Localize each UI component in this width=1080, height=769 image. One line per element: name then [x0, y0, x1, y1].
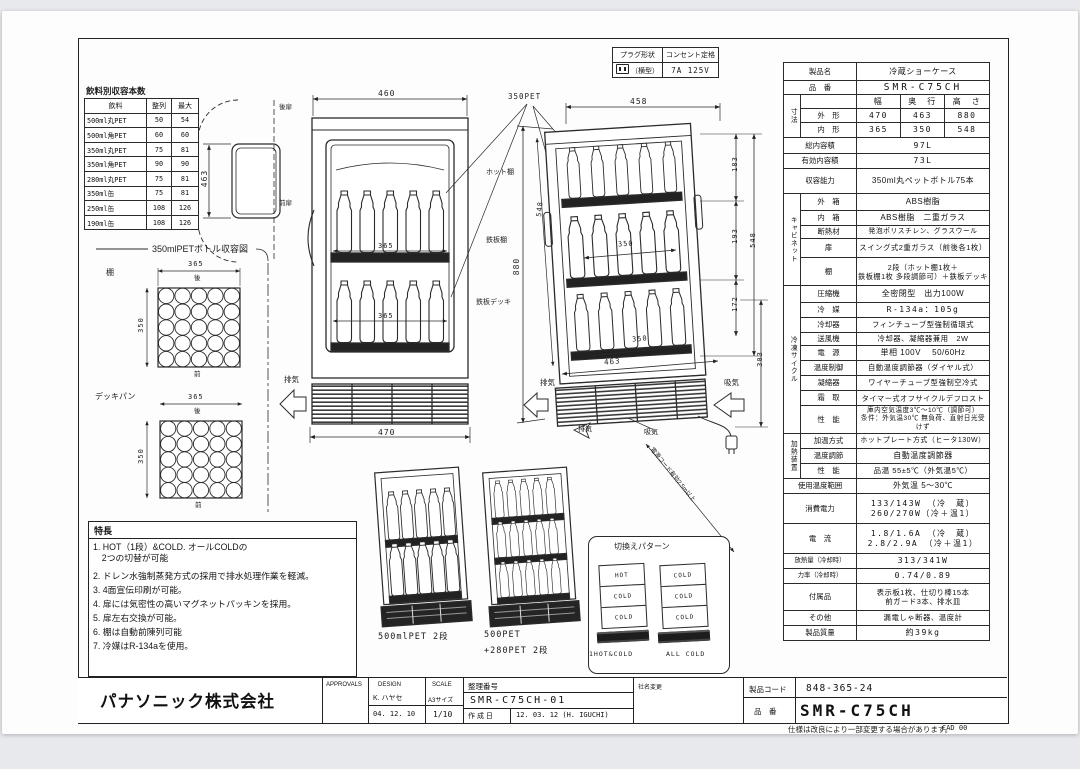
spec-group-label: キャビネット — [784, 194, 801, 286]
spec-row-value: 73L — [857, 154, 990, 169]
capacity-header-cell: 飲料 — [85, 99, 147, 114]
config-unit-1-label: 500mlPET 2段 — [378, 630, 449, 642]
revision-note: 社名変更 — [638, 682, 662, 691]
product-code: 848-365-24 — [806, 683, 873, 694]
shelf-grid-width-dim: 365 — [188, 260, 204, 268]
feature-item: 7. 冷媒はR-134aを使用。 — [93, 641, 352, 652]
front-inner-width-dim-2: 365 — [378, 312, 394, 320]
spec-row-value: 97L — [857, 138, 990, 154]
capacity-row: 250ml缶108126 — [85, 201, 199, 216]
spec-row-value: 133/143W （冷 蔵） 260/270W（冷＋温1） — [857, 494, 990, 524]
spec-row-value: R-134a：105g — [857, 303, 990, 318]
spec-row: その他漏電しゃ断器、温度計 — [784, 611, 990, 626]
spec-row-label: 性 能 — [801, 464, 857, 479]
shelf-grid-front-label: 前 — [194, 368, 201, 378]
deck-depth-dim: 350 — [632, 334, 648, 343]
spec-row-label: 有効内容積 — [784, 154, 857, 169]
bottle-layout-title: 350mlPETボトル収容図 — [152, 242, 248, 255]
spec-row-label: 外 形 — [801, 109, 857, 123]
spec-row-value: 350ml丸ペットボトル75本 — [857, 169, 990, 194]
hot-shelf-label: ホット棚 — [486, 167, 514, 177]
doc-no: SMR-C75CH-01 — [470, 695, 566, 706]
design-header: DESIGN — [378, 682, 401, 688]
beverage-name-cell: 500ml丸PET — [85, 113, 147, 128]
shelf-grid-depth-dim: 350 — [137, 317, 145, 333]
spec-row-label: 温度調節 — [801, 449, 857, 464]
spec-row: 寸法幅奥 行高 さ — [784, 95, 990, 109]
spec-row-label: 総内容積 — [784, 138, 857, 154]
spec-row-label: 収容能力 — [784, 169, 857, 194]
spec-row-value: 自動温度調節器（ダイヤル式） — [857, 361, 990, 376]
config-unit-2-label-line2: +280PET 2段 — [484, 644, 549, 656]
capacity-row: 190ml缶108126 — [85, 215, 199, 230]
capacity-count-cell: 81 — [172, 142, 199, 157]
capacity-row: 350ml缶7581 — [85, 186, 199, 201]
capacity-header-cell: 整列 — [147, 99, 172, 114]
outlet-rating-header: コンセント定格 — [663, 48, 719, 63]
capacity-table-title: 飲料別収容本数 — [86, 85, 146, 97]
spec-row: 冷 媒R-134a：105g — [784, 303, 990, 318]
spec-row: 消費電力133/143W （冷 蔵） 260/270W（冷＋温1） — [784, 494, 990, 524]
beverage-name-cell: 190ml缶 — [85, 215, 147, 230]
product-code-label: 製品コード — [749, 684, 787, 695]
spec-row-label: 付属品 — [784, 584, 857, 611]
spec-row: 凝縮器ワイヤーチューブ型強制空冷式 — [784, 376, 990, 391]
feature-item: 2. ドレン水強制蒸発方式の採用で排水処理作業を軽減。 — [93, 571, 352, 582]
spec-row-label: 温度制御 — [801, 361, 857, 376]
spec-dim-value: 548 — [945, 123, 990, 138]
spec-row-label: 電 源 — [801, 346, 857, 361]
feature-item: 6. 棚は自動前陳列可能 — [93, 627, 352, 638]
spec-row-value: 表示板1枚、仕切り棒15本 前ガード3本、排水皿 — [857, 584, 990, 611]
spec-row-label: 扉 — [801, 239, 857, 258]
doc-no-label: 整理番号 — [468, 681, 498, 692]
spec-row-label: 加温方式 — [801, 434, 857, 449]
spec-row-label: 棚 — [801, 258, 857, 286]
beverage-name-cell: 250ml缶 — [85, 201, 147, 216]
spec-row-label: 凝縮器 — [801, 376, 857, 391]
beverage-name-cell: 350ml角PET — [85, 157, 147, 172]
spec-row: 収容能力350ml丸ペットボトル75本 — [784, 169, 990, 194]
capacity-header-cell: 最大 — [172, 99, 199, 114]
spec-row-label: 品 番 — [784, 81, 857, 95]
spec-row: 力率（冷却時）0.74/0.89 — [784, 569, 990, 584]
feature-item: 3. 4面宣伝印刷が可能。 — [93, 585, 352, 596]
capacity-row: 500ml角PET6060 — [85, 128, 199, 143]
steel-shelf-label: 鉄板棚 — [486, 235, 507, 245]
capacity-count-cell: 54 — [172, 113, 199, 128]
spec-row: 製品質量約39kg — [784, 626, 990, 641]
capacity-count-cell: 81 — [172, 171, 199, 186]
design-date: 04. 12. 10 — [373, 710, 415, 718]
spec-row-label: 消費電力 — [784, 494, 857, 524]
bottom-exhaust-label: 排気 — [578, 424, 592, 434]
plug-spec-table: プラグ形状 コンセント定格 （横型） 7A 125V — [612, 47, 719, 78]
band-cold: COLD — [662, 605, 709, 629]
spec-row: 棚2段（ホット棚1枚＋ 鉄板棚1枚 多段調節可）＋鉄板デッキ — [784, 258, 990, 286]
spec-row-value: スイング式2重ガラス（前後各1枚） — [857, 239, 990, 258]
spec-row-value: 品温 55±5℃（外気温5℃） — [857, 464, 990, 479]
machine-height-dim: 303 — [756, 351, 764, 367]
spec-row-value: 自動温度調節器 — [857, 449, 990, 464]
approvals-header: APPROVALS — [326, 682, 362, 688]
capacity-count-cell: 75 — [147, 142, 172, 157]
spec-row-value: 約39kg — [857, 626, 990, 641]
spec-row-value: ワイヤーチューブ型強制空冷式 — [857, 376, 990, 391]
spec-row-value: 0.74/0.89 — [857, 569, 990, 584]
front-exhaust-label: 排気 — [284, 374, 299, 385]
spec-row-value: 313/341W — [857, 554, 990, 569]
spec-row-value: 外気温 5～30℃ — [857, 479, 990, 494]
deck-grid-label: デッキパン — [95, 391, 135, 402]
deck-grid-front-label: 前 — [195, 499, 202, 509]
spec-row: 外 形470463880 — [784, 109, 990, 123]
spec-dim-value: 幅 — [857, 95, 901, 109]
switch-unit-2-label: ALL COLD — [666, 650, 705, 658]
beverage-name-cell: 500ml角PET — [85, 128, 147, 143]
feature-item: 4. 扉には気密性の高いマグネットパッキンを採用。 — [93, 599, 352, 610]
spec-row: 送風機冷却器、凝縮器兼用 2W — [784, 333, 990, 346]
spec-change-note: 仕様は改良により一部変更する場合があります。 — [788, 724, 952, 735]
spec-row-label: 冷却器 — [801, 318, 857, 333]
seg2-dim: 193 — [731, 228, 739, 244]
spec-row: 冷却器フィンチューブ型強制循環式 — [784, 318, 990, 333]
side-intake-label: 吸気 — [724, 377, 739, 388]
spec-row-label: 使用温度範囲 — [784, 479, 857, 494]
spec-group-label: 加熱装置 — [784, 434, 801, 479]
spec-row-label: 内 形 — [801, 123, 857, 138]
capacity-count-cell: 90 — [147, 157, 172, 172]
spec-row: 使用温度範囲外気温 5～30℃ — [784, 479, 990, 494]
spec-dim-value: 880 — [945, 109, 990, 123]
shelf-grid-label: 棚 — [106, 267, 114, 278]
scale-value: 1/10 — [433, 710, 452, 719]
deck-grid-width-dim: 365 — [188, 393, 204, 401]
spec-row: 霜 取タイマー式オフサイクルデフロスト — [784, 391, 990, 406]
capacity-row: 280ml丸PET7581 — [85, 171, 199, 186]
side-inner-height-right-dim: 548 — [749, 232, 757, 248]
spec-row-label: 断熱材 — [801, 226, 857, 239]
spec-row-label: 送風機 — [801, 333, 857, 346]
band-cold: COLD — [601, 605, 648, 629]
spec-row: 内 形365350548 — [784, 123, 990, 138]
spec-row: 性 能品温 55±5℃（外気温5℃） — [784, 464, 990, 479]
model-label: 品 番 — [754, 706, 777, 717]
spec-dim-value: 365 — [857, 123, 901, 138]
spec-row-label — [801, 95, 857, 109]
deck-grid-depth-dim: 350 — [137, 448, 145, 464]
spec-dim-value: 350 — [901, 123, 945, 138]
side-depth-dim: 463 — [604, 356, 621, 366]
capacity-count-cell: 75 — [147, 186, 172, 201]
scale-header: SCALE — [432, 682, 452, 688]
bottom-intake-label: 吸気 — [644, 427, 658, 437]
spec-row-value: 冷蔵ショーケース — [857, 63, 990, 81]
spec-row-value: ABS樹脂 — [857, 194, 990, 211]
spec-row-value: 漏電しゃ断器、温度計 — [857, 611, 990, 626]
front-width-dim: 460 — [378, 89, 395, 98]
designer-name: K. ハヤセ — [373, 693, 403, 703]
plug-icon — [616, 64, 629, 74]
side-inner-height-dim: 548 — [535, 201, 545, 217]
spec-row: 総内容積97L — [784, 138, 990, 154]
steel-deck-label: 鉄板デッキ — [476, 297, 511, 307]
front-inner-width-dim-1: 365 — [378, 242, 394, 250]
pet-350-label: 350PET — [508, 92, 541, 101]
spec-row-value: 2段（ホット棚1枚＋ 鉄板棚1枚 多段調節可）＋鉄板デッキ — [857, 258, 990, 286]
capacity-count-cell: 108 — [147, 201, 172, 216]
spec-row-value: ホットプレート方式（ヒータ130W） — [857, 434, 990, 449]
spec-row-label: 放熱量（冷却時） — [784, 554, 857, 569]
front-base-width-dim: 470 — [378, 428, 395, 437]
rear-door-label: 後扉 — [279, 101, 292, 111]
spec-row-value: タイマー式オフサイクルデフロスト — [857, 391, 990, 406]
cad-note: CAD 00 — [942, 724, 967, 732]
config-unit-2-label-line1: 500PET — [484, 630, 521, 640]
spec-row-label: 圧縮機 — [801, 286, 857, 303]
plug-shape-header: プラグ形状 — [613, 48, 663, 63]
spec-row: 放熱量（冷却時）313/341W — [784, 554, 990, 569]
spec-row: 性 能庫内空気温度3℃～10℃（調節可） 条件：外気温30℃ 無負荷、直射日光受… — [784, 406, 990, 434]
spec-row: 断熱材発泡ポリスチレン、グラスウール — [784, 226, 990, 239]
capacity-count-cell: 50 — [147, 113, 172, 128]
seg1-dim: 183 — [731, 156, 739, 172]
spec-row-value: 庫内空気温度3℃～10℃（調節可） 条件：外気温30℃ 無負荷、直射日光受けず — [857, 406, 990, 434]
spec-row: 電 源単相 100V 50/60Hz — [784, 346, 990, 361]
spec-row-label: 力率（冷却時） — [784, 569, 857, 584]
paper-size: A3サイズ — [428, 695, 453, 704]
capacity-count-cell: 81 — [172, 186, 199, 201]
plan-depth-dim: 463 — [200, 170, 209, 187]
capacity-count-cell: 60 — [147, 128, 172, 143]
capacity-count-cell: 90 — [172, 157, 199, 172]
spec-row-value: ABS樹脂 二重ガラス — [857, 211, 990, 226]
spec-group-label: 冷凍サイクル — [784, 286, 801, 434]
spec-row-value: 発泡ポリスチレン、グラスウール — [857, 226, 990, 239]
side-width-dim: 458 — [630, 97, 647, 106]
feature-item: 1. HOT（1段）&COLD. オールCOLDの 2つの切替が可能 — [93, 542, 352, 564]
capacity-count-cell: 75 — [147, 171, 172, 186]
capacity-count-cell: 60 — [172, 128, 199, 143]
capacity-count-cell: 126 — [172, 215, 199, 230]
capacity-row: 350ml丸PET7581 — [85, 142, 199, 157]
spec-row-value: 単相 100V 50/60Hz — [857, 346, 990, 361]
scanned-drawing-page: 463 後扉 前扉 460 365 365 470 排気 350PET 458 … — [0, 0, 1080, 769]
feature-item: 5. 扉左右交換が可能。 — [93, 613, 352, 624]
spec-row: キャビネット外 箱ABS樹脂 — [784, 194, 990, 211]
spec-row-label: 製品名 — [784, 63, 857, 81]
seg3-dim: 172 — [731, 296, 739, 312]
spec-row-value: SMR-C75CH — [857, 81, 990, 95]
outlet-rating: 7A 125V — [663, 63, 719, 78]
spec-dim-value: 463 — [901, 109, 945, 123]
spec-table: 製品名冷蔵ショーケース品 番SMR-C75CH寸法幅奥 行高 さ外 形47046… — [783, 62, 990, 641]
spec-row-value: フィンチューブ型強制循環式 — [857, 318, 990, 333]
capacity-header-row: 飲料整列最大 — [85, 99, 199, 114]
side-exhaust-label: 排気 — [540, 377, 555, 388]
spec-row-label: 製品質量 — [784, 626, 857, 641]
spec-dim-value: 高 さ — [945, 95, 990, 109]
capacity-row: 350ml角PET9090 — [85, 157, 199, 172]
spec-row: 電 流1.8/1.6A （冷 蔵） 2.8/2.9A （冷＋温1） — [784, 524, 990, 554]
spec-dim-value: 470 — [857, 109, 901, 123]
spec-row: 付属品表示板1枚、仕切り棒15本 前ガード3本、排水皿 — [784, 584, 990, 611]
capacity-count-cell: 108 — [147, 215, 172, 230]
company-name: パナソニック株式会社 — [100, 688, 275, 712]
beverage-name-cell: 350ml丸PET — [85, 142, 147, 157]
beverage-capacity-table: 飲料整列最大500ml丸PET5054500ml角PET6060350ml丸PE… — [84, 98, 199, 230]
switch-unit-1-label: 1HOT&COLD — [589, 650, 633, 658]
spec-row-label: 内 箱 — [801, 211, 857, 226]
spec-row-label: 霜 取 — [801, 391, 857, 406]
capacity-count-cell: 126 — [172, 201, 199, 216]
switch-pattern-title: 切換えパターン — [614, 541, 670, 552]
features-panel: 特長 1. HOT（1段）&COLD. オールCOLDの 2つの切替が可能2. … — [88, 521, 357, 677]
spec-row-label: 性 能 — [801, 406, 857, 434]
spec-row-value: 全密閉型 出力100W — [857, 286, 990, 303]
spec-row-label: 電 流 — [784, 524, 857, 554]
spec-row: 冷凍サイクル圧縮機全密閉型 出力100W — [784, 286, 990, 303]
spec-row-label: その他 — [784, 611, 857, 626]
created-date: 12. 03. 12 (H. IGUCHI) — [516, 711, 609, 719]
features-title: 特長 — [89, 522, 356, 539]
spec-row: 加熱装置加温方式ホットプレート方式（ヒータ130W） — [784, 434, 990, 449]
spec-dim-value: 奥 行 — [901, 95, 945, 109]
spec-row: 温度調節自動温度調節器 — [784, 449, 990, 464]
spec-row: 内 箱ABS樹脂 二重ガラス — [784, 211, 990, 226]
spec-row-label: 冷 媒 — [801, 303, 857, 318]
spec-row: 扉スイング式2重ガラス（前後各1枚） — [784, 239, 990, 258]
spec-row-value: 冷却器、凝縮器兼用 2W — [857, 333, 990, 346]
spec-row-value: 1.8/1.6A （冷 蔵） 2.8/2.9A （冷＋温1） — [857, 524, 990, 554]
created-label: 作 成 日 — [468, 711, 493, 721]
beverage-name-cell: 350ml缶 — [85, 186, 147, 201]
spec-row: 温度制御自動温度調節器（ダイヤル式） — [784, 361, 990, 376]
title-block: パナソニック株式会社 APPROVALS DESIGN SCALE K. ハヤセ… — [78, 677, 1007, 723]
spec-row: 有効内容積73L — [784, 154, 990, 169]
spec-group-label: 寸法 — [784, 95, 801, 138]
shelf-grid-rear-label: 後 — [194, 272, 201, 282]
shelf-depth-dim: 350 — [618, 239, 634, 248]
switch-unit-all-cold: COLD COLD COLD — [659, 564, 708, 629]
beverage-name-cell: 280ml丸PET — [85, 171, 147, 186]
capacity-row: 500ml丸PET5054 — [85, 113, 199, 128]
spec-row-label: 外 箱 — [801, 194, 857, 211]
spec-row: 品 番SMR-C75CH — [784, 81, 990, 95]
switch-unit-hot-cold: HOT COLD COLD — [598, 564, 647, 629]
deck-grid-rear-label: 後 — [194, 405, 201, 415]
front-door-label: 前扉 — [279, 197, 292, 207]
side-height-dim: 880 — [512, 258, 521, 275]
plug-type: （横型） — [631, 68, 659, 75]
model-number: SMR-C75CH — [800, 701, 914, 720]
spec-row: 製品名冷蔵ショーケース — [784, 63, 990, 81]
